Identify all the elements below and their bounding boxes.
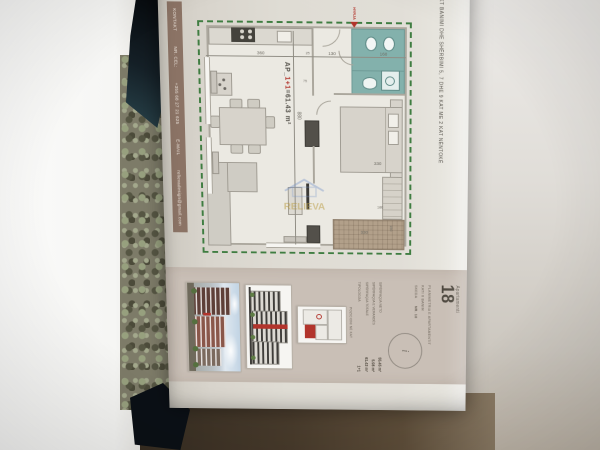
apartment-area-label: AP_1+1=61.43 m² bbox=[283, 62, 291, 125]
pillow-icon bbox=[388, 114, 399, 128]
bathroom bbox=[351, 29, 405, 95]
dimension-bath: 160 bbox=[380, 52, 388, 57]
info-icon: i bbox=[388, 333, 422, 369]
watermark-text: RELIEVA bbox=[284, 202, 325, 213]
chair-icon bbox=[265, 116, 275, 128]
window bbox=[266, 242, 320, 248]
sheet-label: SKEDA bbox=[414, 285, 419, 298]
panel-subtitle-1: PLANIMETRIA E APARTAMENTIT bbox=[427, 285, 432, 345]
structural-column bbox=[305, 120, 320, 147]
shower-icon bbox=[381, 71, 400, 91]
entrance-label: HYRJA bbox=[352, 7, 356, 20]
sheet-number: NR. 18 bbox=[414, 306, 419, 318]
stove-icon bbox=[231, 27, 255, 42]
keyplan-caption: POZICIONI NË KAT bbox=[349, 307, 353, 338]
plan-sheet: OBJEKT BANIMI DHE SHËRBIMI 5, 7 DHE 9 KA… bbox=[157, 0, 470, 411]
area-row: SIPËRFAQJA E VERANDËS5.98 m² bbox=[371, 282, 376, 372]
bathroom-sink-icon bbox=[365, 37, 377, 52]
contact-label: KONTAKT bbox=[172, 8, 178, 31]
panel-subtitle-2: KATI II BANIM bbox=[421, 285, 426, 311]
keyplan-image bbox=[297, 306, 347, 344]
elevation-image bbox=[245, 284, 293, 369]
brand-watermark: RELIEVA bbox=[257, 174, 351, 216]
floor-plan: 330 180 150 330 75 bbox=[197, 20, 412, 255]
dimension-veranda-width: 150 bbox=[389, 225, 394, 231]
entrance-marker: HYRJA bbox=[350, 7, 358, 27]
dimension-small-wall: 75 bbox=[303, 79, 307, 83]
area-row: SIPËRFAQJA TOTALE61.43 m² bbox=[364, 282, 369, 372]
dimension-wardrobe: 180 bbox=[377, 206, 383, 210]
dining-table bbox=[219, 107, 267, 145]
kitchen-counter bbox=[208, 27, 312, 46]
dimension-bed: 330 bbox=[374, 161, 381, 166]
background-surface-right bbox=[450, 0, 600, 450]
elevator-strip bbox=[253, 324, 287, 329]
highlighted-unit bbox=[305, 325, 316, 339]
sofa-arm bbox=[227, 162, 258, 192]
background-bright-left bbox=[0, 0, 140, 450]
red-accent bbox=[203, 313, 211, 316]
area-row: SIPËRFAQJA NETO55.45 m² bbox=[377, 282, 382, 372]
kitchen-sink-icon bbox=[277, 31, 292, 43]
bathroom-sink-icon bbox=[383, 37, 395, 52]
phone-number: +355 68 27 21 625 bbox=[174, 83, 180, 125]
unit-type: 1+1 bbox=[283, 76, 290, 89]
email-address: relievadesign@gmail.com bbox=[176, 170, 182, 225]
blanket-line bbox=[385, 108, 386, 172]
structural-column bbox=[307, 225, 321, 243]
dimension-living: 360 bbox=[257, 50, 265, 55]
toilet-icon bbox=[362, 77, 377, 90]
phone-label: NR. CEL: bbox=[173, 46, 179, 67]
radiator-icon bbox=[212, 152, 219, 175]
dimension-veranda-length: 330 bbox=[361, 230, 368, 235]
bed bbox=[340, 106, 403, 173]
veranda bbox=[333, 219, 405, 250]
email-label: E-MAIL bbox=[175, 139, 180, 155]
contact-bar: KONTAKT NR. CEL: +355 68 27 21 625 E-MAI… bbox=[167, 1, 188, 232]
pillow-icon bbox=[388, 131, 399, 145]
nightstand bbox=[390, 99, 403, 108]
chair-icon bbox=[230, 144, 243, 154]
building-render-image bbox=[186, 282, 242, 373]
chair-icon bbox=[248, 144, 261, 154]
project-title: OBJEKT BANIMI DHE SHËRBIMI 5, 7 DHE 9 KA… bbox=[436, 0, 444, 295]
dimension-wall: 25 bbox=[306, 51, 310, 55]
chair-icon bbox=[210, 116, 220, 128]
radiator-icon bbox=[210, 71, 217, 94]
apartment-number: 18 bbox=[437, 284, 457, 303]
info-panel: Apartamenti 18 PLANIMETRIA E APARTAMENTI… bbox=[165, 267, 466, 384]
dimension-total-width: 880 bbox=[296, 112, 302, 120]
chair-icon bbox=[247, 99, 260, 109]
entrance-arrow-icon bbox=[350, 22, 358, 28]
chair-icon bbox=[229, 99, 242, 109]
dimension-hall: 130 bbox=[328, 51, 336, 56]
typology-row: TIPOLOGJIA1+1 bbox=[356, 282, 361, 372]
wardrobe bbox=[382, 177, 402, 220]
